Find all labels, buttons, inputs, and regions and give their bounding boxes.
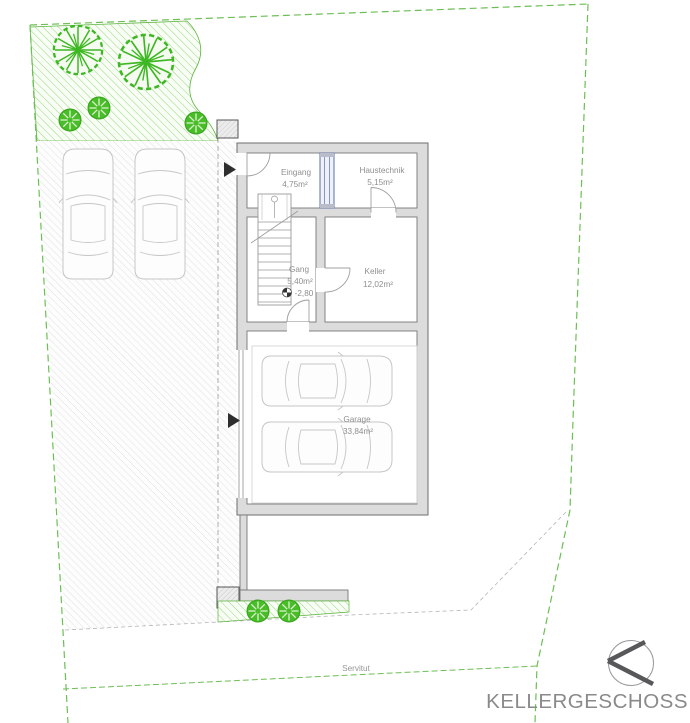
room-area-eingang: 4,75m² xyxy=(282,180,308,189)
room-label-eingang: Eingang xyxy=(281,168,311,177)
room-area-gang: 5,40m² xyxy=(287,277,313,286)
parked-car-1 xyxy=(59,149,117,279)
level-value: -2,80 xyxy=(295,289,314,298)
north-arrow-icon xyxy=(608,641,654,686)
driveway xyxy=(37,138,240,630)
staircase xyxy=(251,194,298,305)
room-area-keller: 12,02m² xyxy=(363,280,393,289)
parked-car-2 xyxy=(131,149,189,279)
bush-icon xyxy=(185,112,207,134)
room-area-garage: 33,84m² xyxy=(343,427,373,436)
plan-title: KELLERGESCHOSS xyxy=(486,690,688,713)
keller-door-opening xyxy=(316,268,326,292)
room-label-gang: Gang xyxy=(289,265,309,274)
bush-icon xyxy=(59,109,81,131)
room-label-garage: Garage xyxy=(343,415,371,424)
wall-south-vertical xyxy=(240,515,247,590)
bush-icon xyxy=(247,600,269,622)
room-area-haustechnik: 5,15m² xyxy=(367,178,393,187)
bush-icon xyxy=(278,600,300,622)
room-label-keller: Keller xyxy=(365,267,386,276)
gang-garage-door-opening xyxy=(287,322,309,332)
garage-door-opening xyxy=(237,350,248,498)
site-plan-drawing: Eingang 4,75m² Haustechnik 5,15m² Gang 5… xyxy=(0,0,690,723)
haustechnik-door-opening xyxy=(371,208,396,218)
servitut-label: Servitut xyxy=(342,664,370,673)
tree-icon xyxy=(54,26,102,74)
entrance-opening xyxy=(237,153,248,175)
room-label-haustechnik: Haustechnik xyxy=(359,166,405,175)
boundary-north xyxy=(30,4,588,25)
window-element xyxy=(320,153,334,208)
garage-car-1 xyxy=(262,352,392,410)
floor-plan-canvas: Eingang 4,75m² Haustechnik 5,15m² Gang 5… xyxy=(0,0,690,723)
level-marker-icon xyxy=(283,288,292,297)
bush-icon xyxy=(88,97,110,119)
wall-pier-top xyxy=(217,120,238,138)
building xyxy=(237,143,429,515)
wall-south-horizontal xyxy=(240,590,348,601)
servitut-line xyxy=(63,666,537,689)
boundary-east xyxy=(535,4,588,723)
